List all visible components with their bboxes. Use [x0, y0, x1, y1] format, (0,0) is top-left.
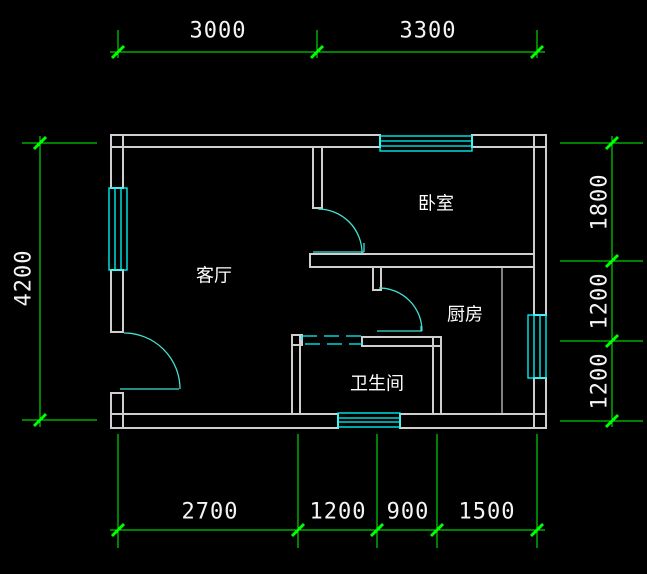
room-label-bedroom[interactable]: 卧室: [418, 194, 454, 215]
dim-text-bottom-1200[interactable]: 1200: [310, 500, 367, 525]
window-top-wall[interactable]: [380, 136, 472, 151]
dim-text-top-3300[interactable]: 3300: [400, 19, 457, 44]
wall-divider-living-bedroom: [313, 147, 322, 208]
wall-right-upper: [534, 135, 546, 315]
dim-text-right-1200a[interactable]: 1200: [588, 273, 613, 330]
wall-bathroom-right: [433, 337, 441, 414]
dim-text-bottom-2700[interactable]: 2700: [182, 500, 239, 525]
door-bedroom[interactable]: [313, 209, 364, 253]
dim-text-top-3000[interactable]: 3000: [190, 19, 247, 44]
walls-layer[interactable]: [111, 135, 546, 428]
wall-left-lower: [111, 393, 123, 428]
door-bathroom-sliding[interactable]: [302, 336, 362, 344]
sliding-door-dashed-box: [302, 336, 362, 344]
wall-left-upper: [111, 135, 123, 188]
door-kitchen[interactable]: [377, 288, 422, 331]
wall-right-lower: [534, 378, 546, 428]
wall-bedroom-bottom: [310, 254, 534, 267]
wall-bottom-left: [111, 414, 338, 428]
door-swing-arc: [124, 333, 180, 389]
dimension-right[interactable]: 1800 1200 1200: [560, 136, 643, 427]
floorplan-canvas[interactable]: 3000 3300 2700 1200 900 1500 4200: [0, 0, 647, 574]
dim-text-bottom-1500[interactable]: 1500: [459, 500, 516, 525]
wall-kitchen-stub: [373, 267, 381, 290]
room-label-living-room[interactable]: 客厅: [196, 266, 232, 287]
dim-text-right-1200b[interactable]: 1200: [588, 353, 613, 410]
wall-bathroom-left: [292, 335, 300, 414]
dim-text-left-4200[interactable]: 4200: [12, 250, 37, 307]
door-entrance[interactable]: [120, 333, 180, 389]
wall-bathroom-top-b: [362, 337, 441, 346]
window-frame: [109, 188, 127, 270]
dim-text-right-1800[interactable]: 1800: [588, 174, 613, 231]
door-swing-arc: [318, 209, 362, 253]
wall-top-left: [111, 135, 380, 147]
dim-text-bottom-900[interactable]: 900: [387, 500, 430, 525]
room-labels[interactable]: 客厅 卧室 厨房 卫生间: [196, 194, 483, 395]
dimension-top[interactable]: 3000 3300: [110, 19, 545, 59]
door-swing-arc: [379, 288, 422, 331]
room-label-kitchen[interactable]: 厨房: [447, 305, 483, 326]
window-frame: [380, 136, 472, 151]
window-bottom-wall[interactable]: [338, 413, 400, 427]
room-label-bathroom[interactable]: 卫生间: [350, 374, 404, 395]
cad-drawing[interactable]: 3000 3300 2700 1200 900 1500 4200: [0, 0, 647, 574]
dimension-left[interactable]: 4200: [12, 136, 98, 427]
window-frame: [528, 315, 546, 378]
wall-left-mid: [111, 270, 123, 332]
window-right-wall[interactable]: [528, 315, 546, 378]
window-frame: [338, 413, 400, 427]
window-left-wall[interactable]: [109, 188, 127, 270]
wall-bottom-right: [400, 414, 546, 428]
dimension-bottom[interactable]: 2700 1200 900 1500: [110, 434, 545, 548]
